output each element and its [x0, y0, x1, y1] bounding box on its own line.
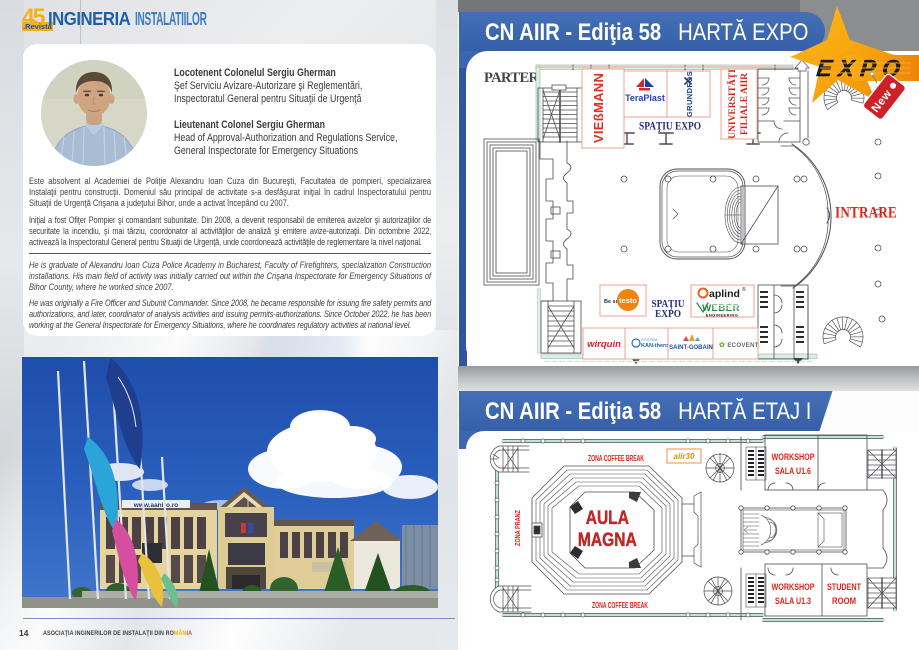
svg-text:ECOVENT: ECOVENT	[727, 342, 758, 349]
svg-text:aiir30: aiir30	[674, 452, 695, 461]
svg-text:KAN-therm: KAN-therm	[641, 343, 670, 349]
svg-text:ZONA COFFEE BREAK: ZONA COFFEE BREAK	[592, 601, 648, 610]
svg-text:PARTER: PARTER	[484, 70, 540, 86]
svg-text:®: ®	[742, 286, 746, 293]
svg-text:TeraPlast: TeraPlast	[625, 93, 665, 103]
svg-text:SYSTEM: SYSTEM	[641, 337, 657, 342]
svg-text:VIEßMANN: VIEßMANN	[591, 73, 606, 143]
svg-text:STUDENT: STUDENT	[827, 582, 861, 592]
svg-text:FILIALE AIIR: FILIALE AIIR	[740, 73, 750, 135]
svg-text:SPAŢIU EXPO: SPAŢIU EXPO	[639, 121, 701, 133]
svg-text:AULA: AULA	[586, 507, 630, 529]
svg-text:WORKSHOP: WORKSHOP	[772, 582, 815, 592]
svg-text:wirquin: wirquin	[587, 339, 621, 350]
svg-text:UNIVERSITĂŢI: UNIVERSITĂŢI	[726, 69, 738, 139]
svg-text:ROOM: ROOM	[832, 596, 856, 606]
svg-text:INTRARE: INTRARE	[835, 205, 897, 222]
svg-text:MAGNA: MAGNA	[578, 529, 637, 551]
svg-text:✿: ✿	[719, 341, 725, 349]
svg-text:ZONA PRANZ: ZONA PRANZ	[513, 510, 522, 546]
svg-text:SALA U1.6: SALA U1.6	[775, 466, 811, 476]
svg-text:ZONA COFFEE BREAK: ZONA COFFEE BREAK	[588, 454, 644, 463]
svg-text:SAINT-GOBAIN: SAINT-GOBAIN	[669, 345, 713, 351]
svg-text:www.aaniro.ro: www.aaniro.ro	[133, 502, 179, 509]
svg-text:GRUNDFOS: GRUNDFOS	[685, 71, 694, 117]
svg-text:SALA U1.3: SALA U1.3	[775, 596, 811, 606]
svg-text:testo: testo	[619, 296, 637, 305]
svg-text:EXPO: EXPO	[655, 309, 681, 320]
svg-text:aplind: aplind	[709, 288, 740, 300]
svg-text:WORKSHOP: WORKSHOP	[772, 452, 815, 462]
svg-text:ENGINEERING: ENGINEERING	[706, 313, 738, 318]
